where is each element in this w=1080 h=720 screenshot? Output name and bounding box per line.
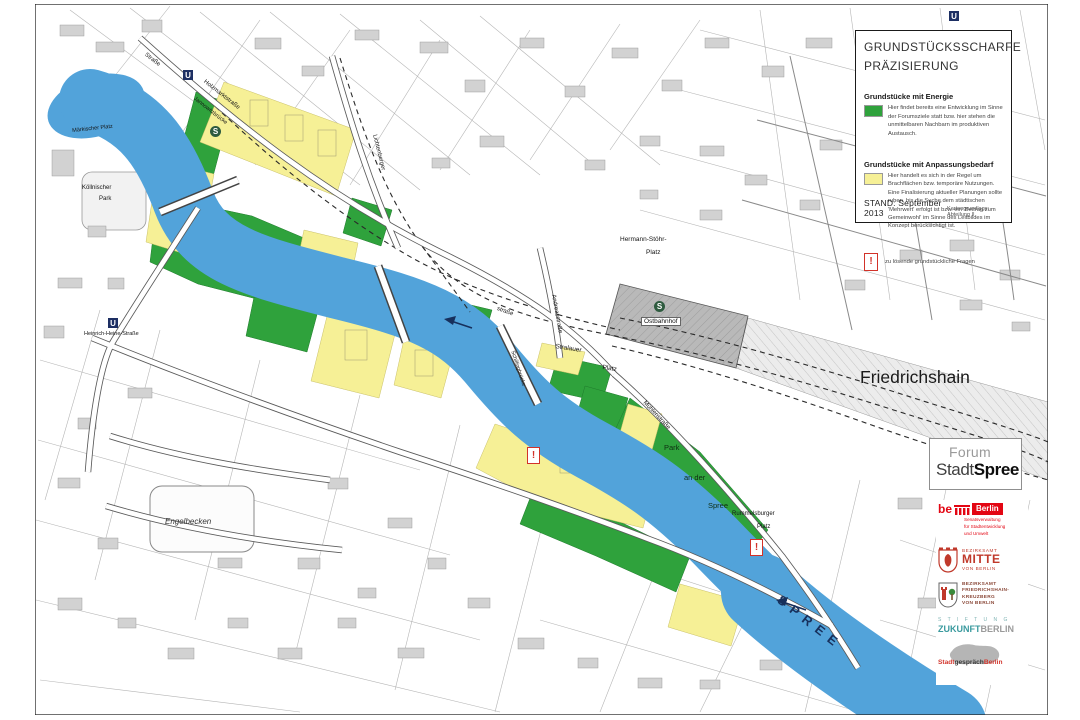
- stiftung-word: S T I F T U N G: [938, 617, 1026, 623]
- label-koellnischer-park: Park: [99, 196, 111, 203]
- fk-line4: VON BERLIN: [962, 601, 1009, 607]
- friedrichshain-kreuzberg-crest-icon: [938, 582, 958, 608]
- legend-entry-description: Hier findet bereits eine Entwicklung im …: [888, 104, 1004, 138]
- sbahn-icon: S: [210, 126, 221, 137]
- legend-entry-adaptation: Grundstücke mit Anpassungsbedarf Hier ha…: [864, 160, 1004, 231]
- sbahn-icon: S: [654, 301, 665, 312]
- legend-panel: GRUNDSTÜCKSSCHARFE PRÄZISIERUNG Grundstü…: [855, 30, 1012, 223]
- zukunft-word: ZUKUNFT: [938, 624, 981, 634]
- label-hermann-stoehr-platz: Platz: [646, 249, 660, 256]
- label-park-spree: Spree: [708, 502, 728, 510]
- stadtspree-word: StadtSpree: [936, 460, 1017, 480]
- bezirksamt-friedrichshain-kreuzberg-logo: BEZIRKSAMT FRIEDRICHSHAIN- KREUZBERG VON…: [938, 582, 1026, 608]
- legend-entry-questions: ! zu lösende grundstückliche Fragen: [864, 253, 1004, 271]
- stadt-part: Stadt: [938, 659, 954, 666]
- legend-entry-energy: Grundstücke mit Energie Hier findet bere…: [864, 92, 1004, 138]
- legend-entry-heading: Grundstücke mit Energie: [864, 92, 1004, 101]
- legend-title: GRUNDSTÜCKSSCHARFE PRÄZISIERUNG: [864, 38, 1004, 76]
- berlin-wordmark: Berlin: [972, 503, 1003, 515]
- forum-word: Forum: [936, 444, 1017, 460]
- mitte-line2: MITTE: [962, 553, 1001, 566]
- be-wordmark: be: [938, 503, 952, 515]
- label-rummelsburger-platz: Platz: [757, 524, 770, 531]
- berlin-part: Berlin: [984, 659, 1003, 666]
- gespraech-part: gespräch: [954, 659, 983, 666]
- mitte-crest-icon: [938, 547, 958, 573]
- exclamation-icon: !: [864, 253, 878, 271]
- be-berlin-logo: be Berlin Senatsverwaltung für Stadtentw…: [938, 503, 1026, 538]
- legend-entry-heading: Grundstücke mit Anpassungsbedarf: [864, 160, 1004, 169]
- label-heinrich-heine-strasse: Heinrich-Heine-Straße: [84, 331, 139, 337]
- stadt-part: Stadt: [936, 460, 974, 479]
- ubahn-icon: U: [183, 70, 193, 80]
- mitte-line3: VON BERLIN: [962, 566, 1001, 571]
- label-koellnischer: Köllnischer: [82, 185, 111, 192]
- senate-subtitle: Senatsverwaltung für Stadtentwicklung un…: [938, 517, 1026, 538]
- label-hermann-stoehr: Hermann-Stöhr-: [620, 236, 667, 243]
- ubahn-icon: U: [949, 11, 959, 21]
- fk-line2: FRIEDRICHSHAIN-: [962, 588, 1009, 594]
- bezirksamt-mitte-logo: BEZIRKSAMT MITTE VON BERLIN: [938, 547, 1026, 573]
- label-engelbecken: Engelbecken: [165, 518, 211, 527]
- label-an-der: an der: [684, 474, 705, 482]
- exclamation-marker: !: [750, 539, 763, 556]
- label-ostbahnhof: Ostbahnhof: [641, 317, 681, 326]
- legend-stand-date: STAND: September 2013: [864, 198, 947, 218]
- legend-map-source: Kartengrundlage: Abteilung II: [947, 206, 1006, 218]
- koellnischer-park-area: [82, 172, 146, 230]
- brandenburg-gate-icon: [954, 504, 970, 515]
- yellow-swatch: [864, 173, 883, 185]
- spree-part: Spree: [974, 460, 1019, 479]
- exclamation-marker: !: [527, 447, 540, 464]
- berlin-word: BERLIN: [981, 624, 1015, 634]
- stiftung-zukunft-berlin-logo: S T I F T U N G ZUKUNFTBERLIN: [938, 617, 1026, 634]
- ubahn-icon: U: [108, 318, 118, 328]
- green-swatch: [864, 105, 883, 117]
- label-rummelsburger: Rummelsburger: [732, 511, 775, 518]
- legend-exclamation-note: zu lösende grundstückliche Fragen: [885, 259, 975, 265]
- label-friedrichshain: Friedrichshain: [860, 368, 970, 387]
- stadtgespraech-berlin-logo: StadtgesprächBerlin: [938, 643, 1026, 673]
- label-park: Park: [664, 444, 679, 452]
- forum-stadtspree-box: Forum StadtSpree: [929, 438, 1022, 490]
- logos-column: be Berlin Senatsverwaltung für Stadtentw…: [936, 500, 1028, 685]
- map-page: Friedrichshain SPREE Engelbecken Ostbahn…: [0, 0, 1080, 720]
